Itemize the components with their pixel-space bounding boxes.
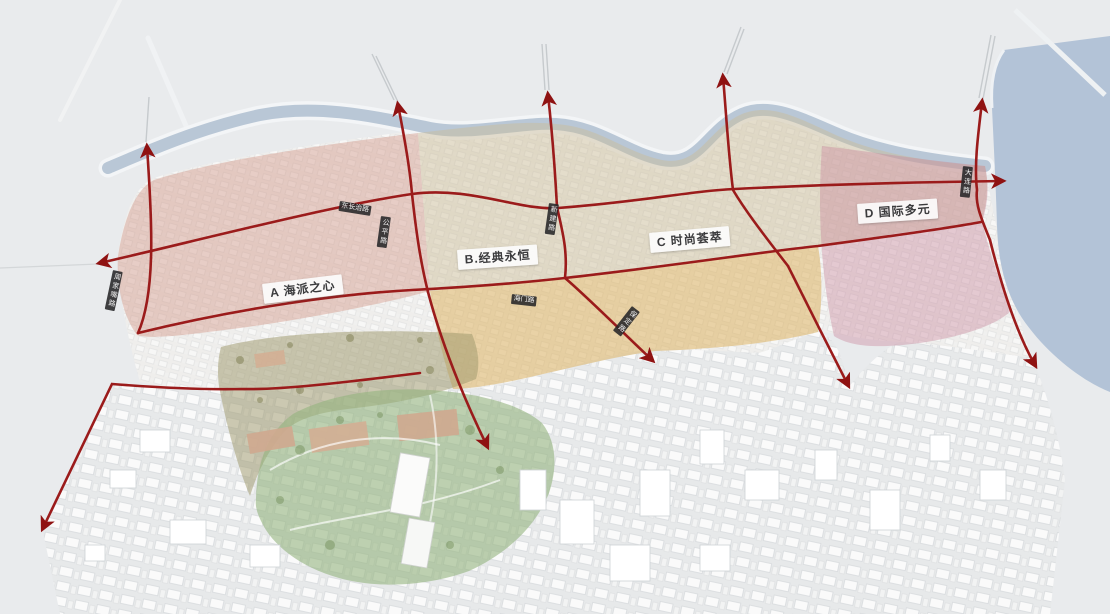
map-render-layer (0, 0, 1110, 614)
zone-d-overlay (820, 146, 1012, 346)
planning-map: A 海派之心 B.经典永恒 C 时尚荟萃 D 国际多元 东长治路 周家嘴路 公平… (0, 0, 1110, 614)
